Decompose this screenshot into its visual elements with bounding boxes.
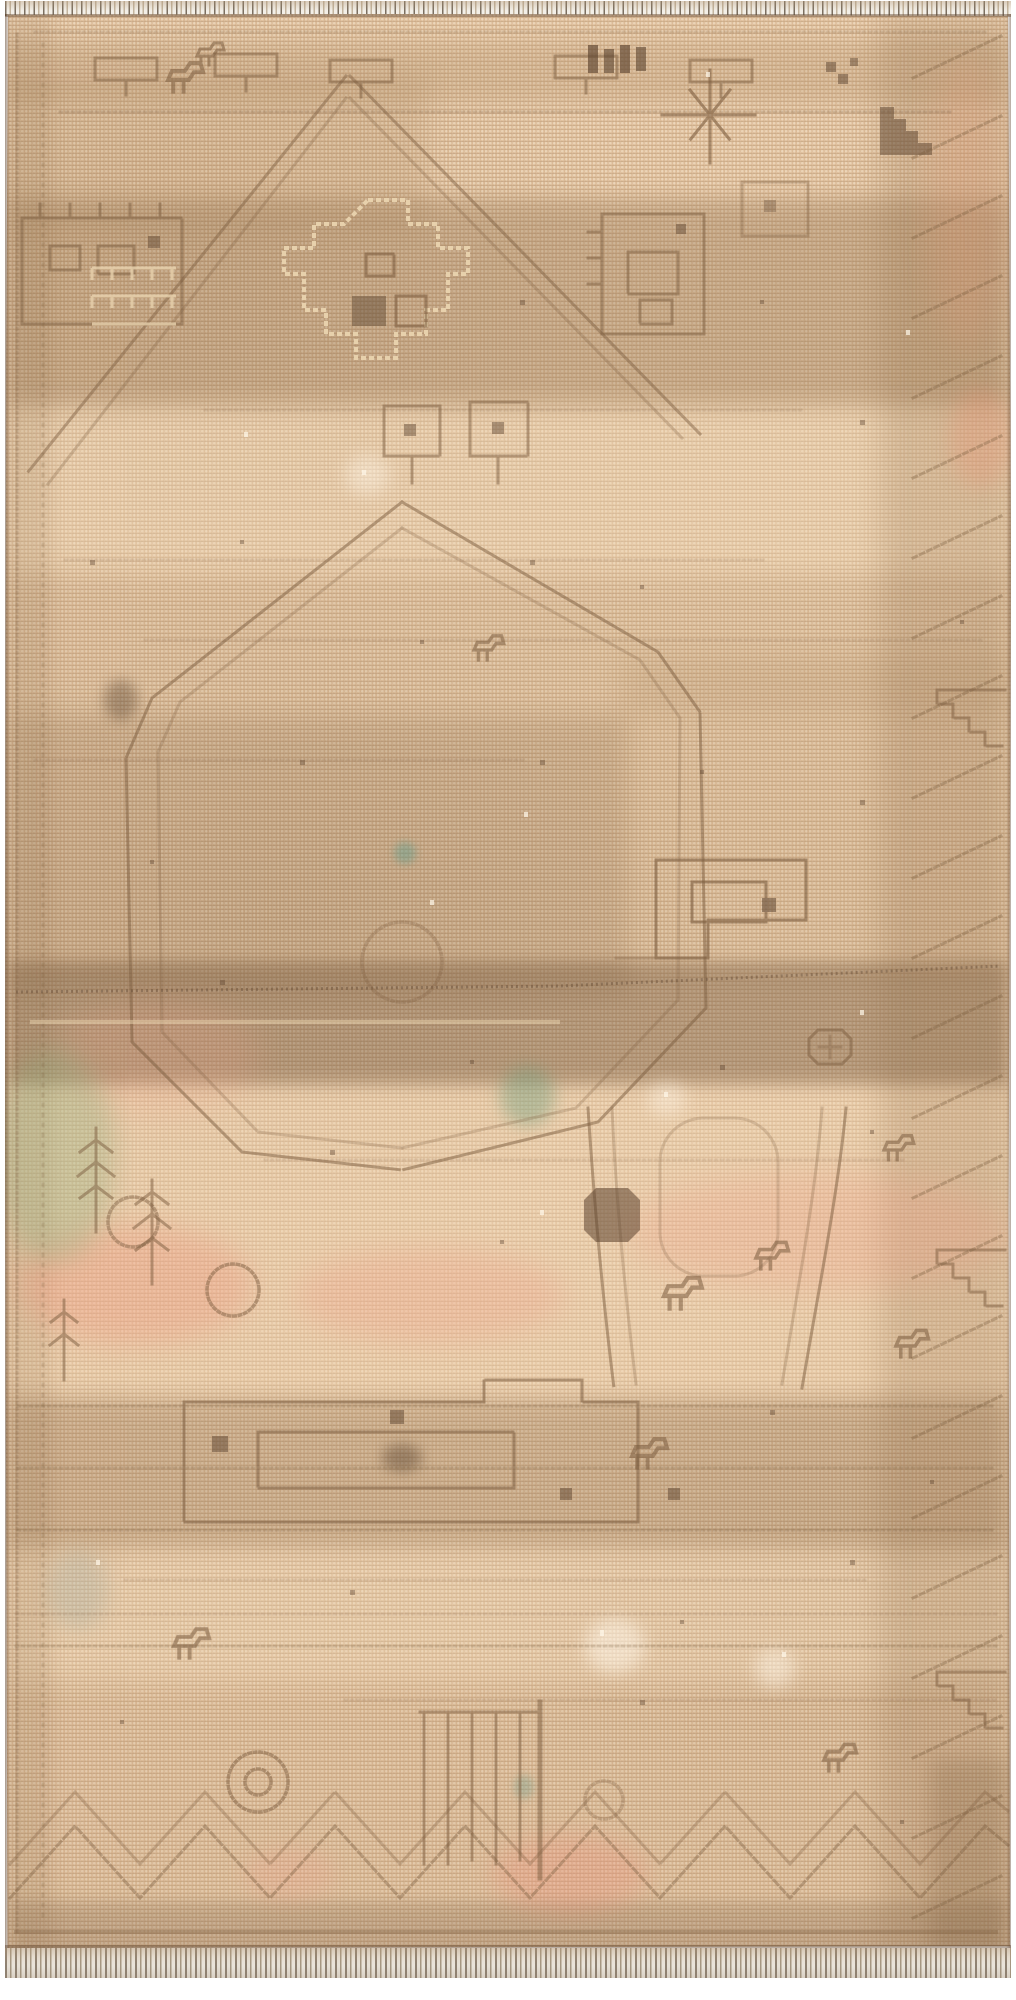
top-border-bar-motif	[588, 45, 858, 84]
rug-body	[5, 14, 1011, 1948]
right-border-hatching	[913, 36, 1001, 1918]
castle-motif-upper-right	[588, 214, 704, 334]
bottom-border-rows	[16, 1614, 1000, 1932]
left-selvedge	[5, 14, 10, 1948]
top-hem-line	[5, 14, 1011, 17]
scattered-dark-knots	[90, 300, 964, 1824]
rug-photograph	[0, 0, 1016, 2000]
hourglass-outline	[588, 1108, 846, 1388]
octagon-rosette-dark	[584, 1188, 640, 1242]
central-hexagon-outline	[126, 502, 706, 1170]
cross-flower-motif	[662, 70, 758, 166]
tree-motifs-left	[50, 1128, 170, 1380]
white-wear-flecks	[96, 72, 910, 1657]
comb-gate-motif	[420, 1702, 540, 1878]
box-motif-far-right	[742, 182, 808, 236]
bottom-zigzag-border	[10, 1792, 1008, 1898]
band-shelf-edge	[16, 966, 1000, 992]
upper-diamond-outline	[28, 76, 700, 484]
castle-motif-upper-left	[22, 204, 182, 324]
rug-motifs-svg	[5, 14, 1011, 1948]
right-border-step-motifs	[937, 690, 1005, 1728]
keyhole-anchor-motif	[616, 860, 806, 958]
right-selvedge	[1006, 14, 1011, 1948]
bottom-fringe	[5, 1948, 1011, 1978]
stepped-cross-medallion	[284, 200, 468, 358]
comb-motifs-left	[92, 268, 176, 324]
double-eye-motif	[384, 402, 528, 484]
animal-motifs	[174, 636, 928, 1771]
stepped-arrow-motif-top-right	[880, 107, 932, 155]
motif-layer	[5, 14, 1011, 1948]
lower-medallion-band	[18, 1380, 996, 1530]
octagon-rosette-small	[809, 1030, 851, 1064]
